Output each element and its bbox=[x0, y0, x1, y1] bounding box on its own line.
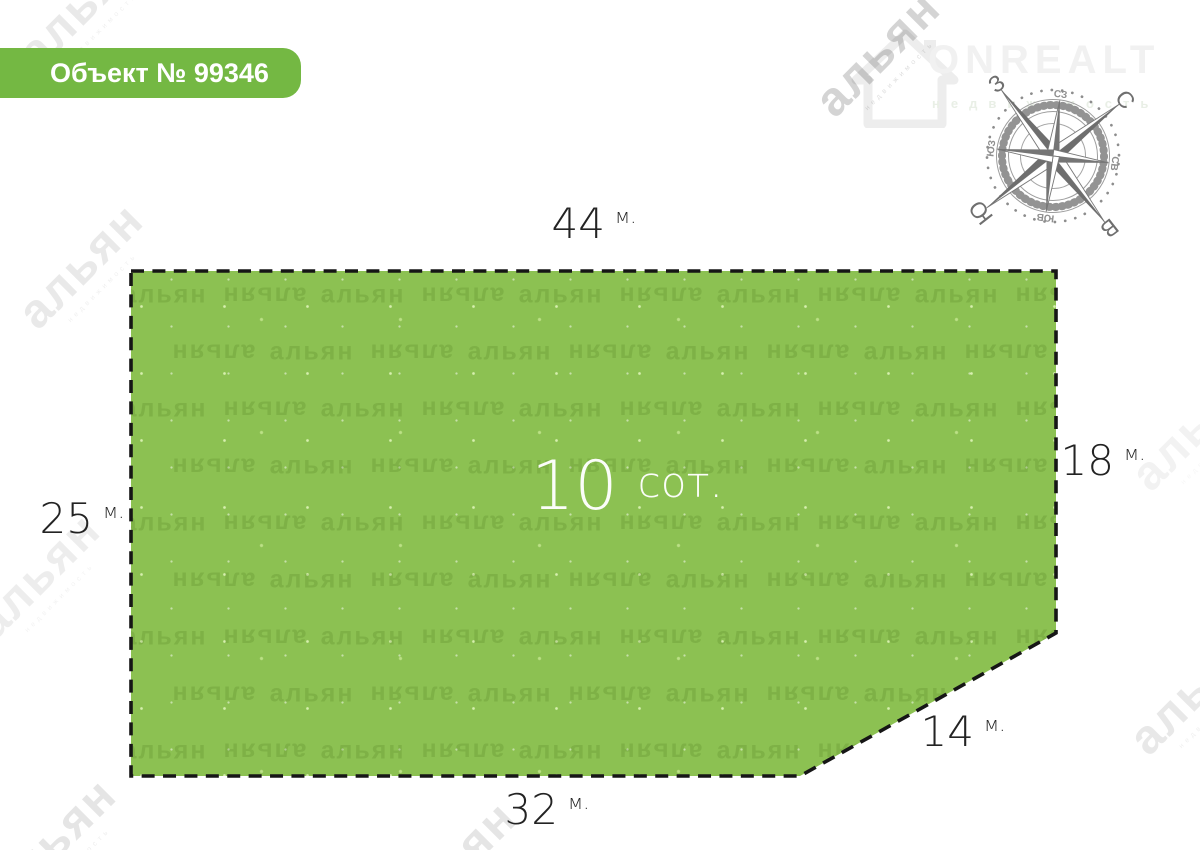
plot-area-label: 10 сот. bbox=[531, 453, 723, 521]
dimension-top-unit: м. bbox=[615, 206, 636, 226]
dimension-bottom: 32 м. bbox=[505, 789, 590, 831]
plot-shape bbox=[0, 0, 1200, 850]
dimension-right-unit: м. bbox=[1124, 443, 1145, 463]
object-number-badge: Объект № 99346 bbox=[0, 48, 301, 98]
plot-area-value: 10 bbox=[531, 453, 618, 521]
dimension-right-value: 18 bbox=[1061, 440, 1114, 482]
object-number-label: Объект № 99346 bbox=[50, 58, 269, 89]
dimension-bottom-value: 32 bbox=[505, 789, 558, 831]
dimension-right: 18 м. bbox=[1061, 440, 1146, 482]
dimension-left: 25 м. bbox=[40, 498, 125, 540]
dimension-left-unit: м. bbox=[103, 501, 124, 521]
dimension-top: 44 м. bbox=[552, 203, 637, 245]
land-plot-diagram: ONREALT недвижимость альяннедвижимостьал… bbox=[0, 0, 1200, 850]
plot-area-unit: сот. bbox=[638, 462, 723, 504]
dimension-diagonal-value: 14 bbox=[921, 711, 974, 753]
dimension-top-value: 44 bbox=[552, 203, 605, 245]
dimension-diagonal-unit: м. bbox=[984, 714, 1005, 734]
dimension-diagonal: 14 м. bbox=[921, 711, 1006, 753]
dimension-left-value: 25 bbox=[40, 498, 93, 540]
dimension-bottom-unit: м. bbox=[568, 792, 589, 812]
